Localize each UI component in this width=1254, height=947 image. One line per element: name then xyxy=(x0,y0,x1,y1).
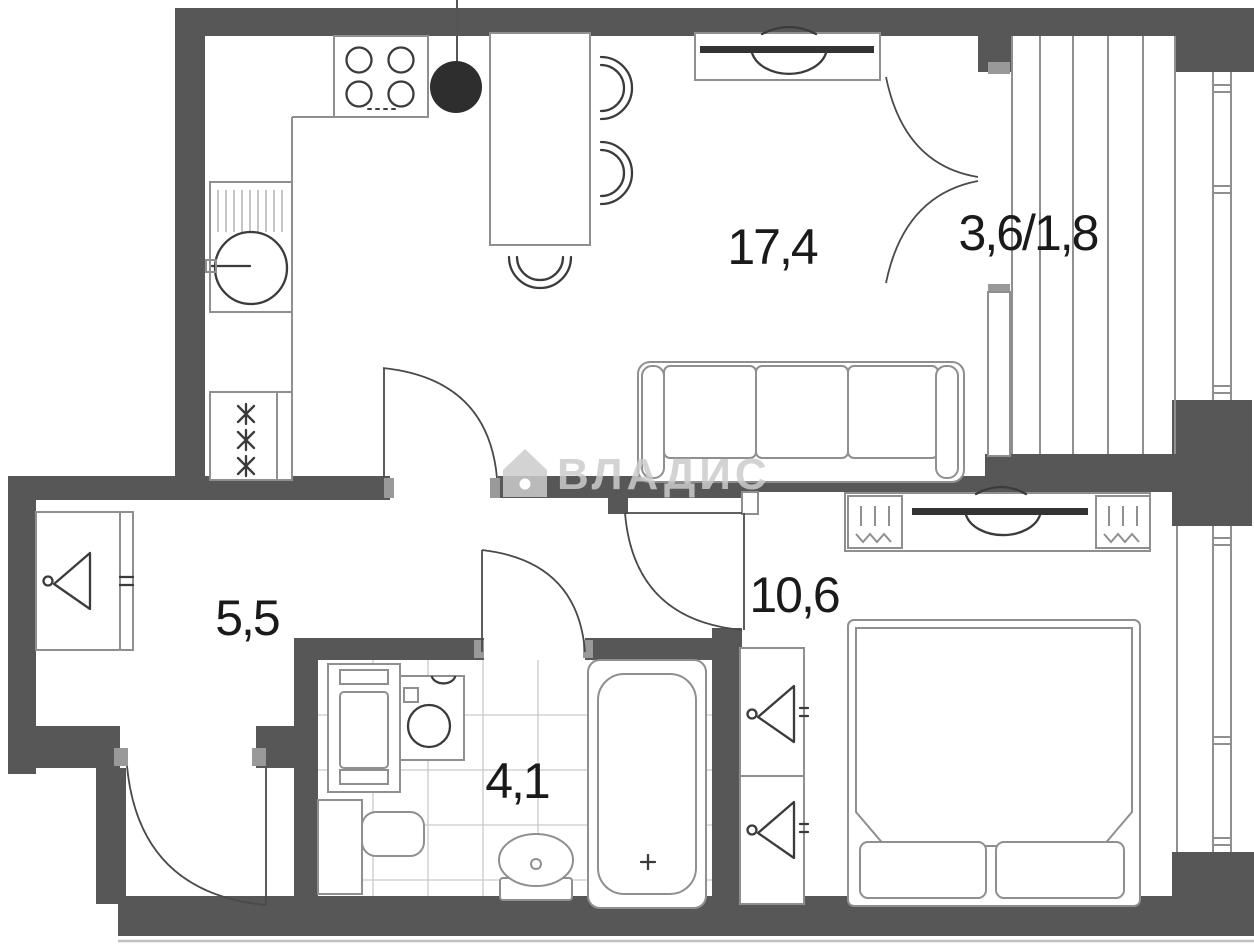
label-hallway: 5,5 xyxy=(215,590,279,646)
label-bedroom: 10,6 xyxy=(749,567,839,623)
bathroom-door xyxy=(474,550,593,658)
house-icon-window xyxy=(520,479,531,490)
fridge xyxy=(210,392,292,480)
kitchen-sink xyxy=(206,182,292,312)
living-room-door xyxy=(383,368,500,498)
house-icon xyxy=(503,449,547,497)
pillow xyxy=(860,842,986,898)
bedroom-wardrobe xyxy=(740,648,808,904)
bed xyxy=(848,620,1140,906)
bedroom-window xyxy=(845,487,1150,551)
dining-set xyxy=(490,33,632,288)
living-window xyxy=(695,27,880,80)
entrance-door xyxy=(114,748,266,905)
label-bathroom: 4,1 xyxy=(485,753,549,809)
floor-plan: 17,4 3,6/1,8 5,5 10,6 4,1 ВЛАДИС xyxy=(0,0,1254,947)
kitchen-counter-edge xyxy=(292,117,334,478)
kitchen xyxy=(206,0,482,480)
dining-table xyxy=(490,33,590,245)
toilet xyxy=(499,834,573,900)
washbasin xyxy=(400,676,464,760)
pillow xyxy=(996,842,1124,898)
bathtub xyxy=(588,660,706,908)
label-living-kitchen: 17,4 xyxy=(727,219,818,275)
hallway-wardrobe xyxy=(36,512,133,650)
label-balcony: 3,6/1,8 xyxy=(959,205,1098,261)
vent-circle-icon xyxy=(430,61,482,113)
floor-plan-svg: 17,4 3,6/1,8 5,5 10,6 4,1 ВЛАДИС xyxy=(0,0,1254,947)
washing-machine xyxy=(328,664,400,792)
watermark-text: ВЛАДИС xyxy=(557,450,771,499)
bedroom-door xyxy=(625,492,758,630)
stove xyxy=(334,36,428,117)
watermark: ВЛАДИС xyxy=(503,449,771,499)
